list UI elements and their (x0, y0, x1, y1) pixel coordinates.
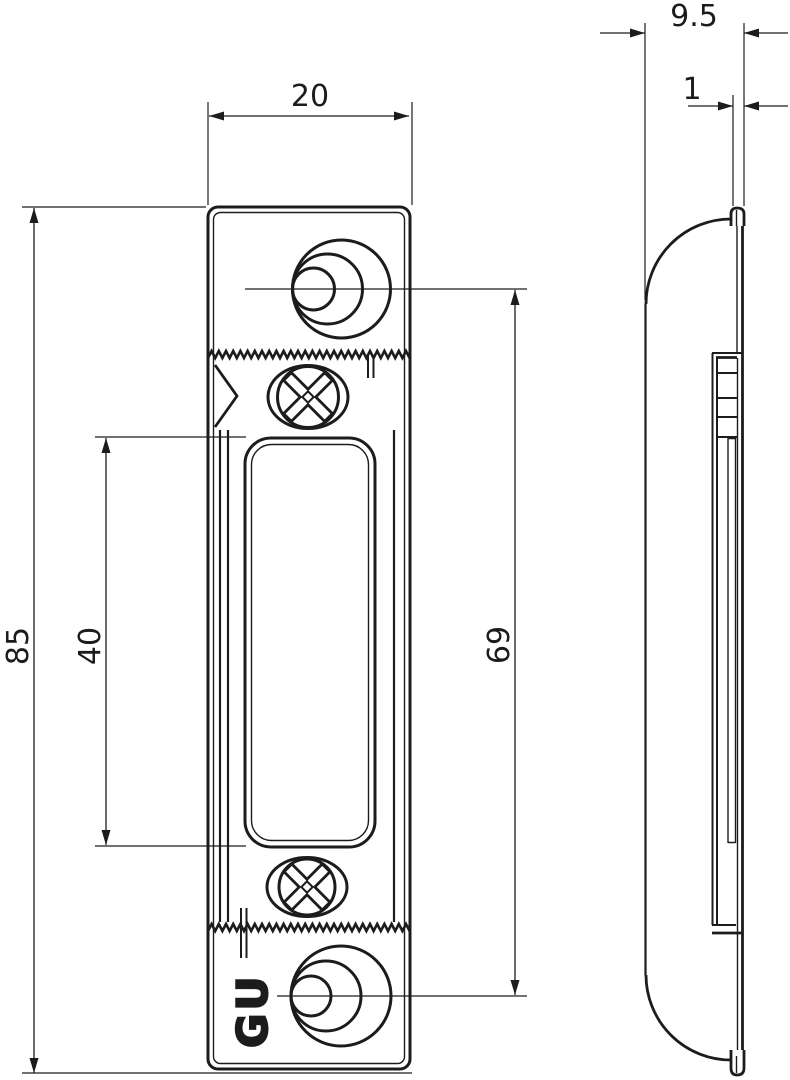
dimension-hole-spacing: 69 (482, 290, 520, 995)
technical-drawing-page: GU 20 85 40 69 9.5 (0, 0, 790, 1080)
adjustment-notch (215, 365, 237, 427)
latch-slot-lip (252, 445, 369, 841)
break-line-top (208, 351, 410, 358)
dimension-label-slot: 40 (73, 627, 108, 665)
side-view (646, 208, 745, 1075)
bottom-countersunk-hole (277, 946, 527, 1046)
bottom-screw (267, 849, 347, 925)
dimension-plate-thickness: 1 (682, 72, 788, 206)
dimension-side-depth: 9.5 (600, 0, 788, 300)
dimension-label-width: 20 (291, 79, 329, 114)
plate-outline (208, 207, 410, 1069)
extension-lines (95, 437, 246, 846)
extension-lines (208, 102, 412, 205)
dimension-label-depth: 9.5 (670, 0, 718, 34)
side-profile-outline (646, 208, 744, 1075)
arrowheads (718, 102, 759, 111)
latch-slot (245, 438, 375, 847)
top-screw-phillips-cross (267, 356, 349, 438)
break-line-bottom (208, 924, 410, 931)
front-view: GU (208, 207, 527, 1069)
side-inner-lines (728, 210, 738, 1073)
dimension-plate-width: 20 (208, 79, 412, 205)
dimension-label-height: 85 (1, 627, 36, 665)
dimension-label-spacing: 69 (482, 626, 517, 664)
top-countersunk-hole (245, 240, 527, 338)
dimension-label-thickness: 1 (682, 72, 701, 107)
gu-logo: GU (228, 973, 277, 1048)
tick-mark-top (368, 355, 374, 378)
latch-slot-outline (245, 438, 375, 847)
strike-plate-drawing: GU 20 85 40 69 9.5 (0, 0, 790, 1080)
top-screw (267, 356, 349, 438)
